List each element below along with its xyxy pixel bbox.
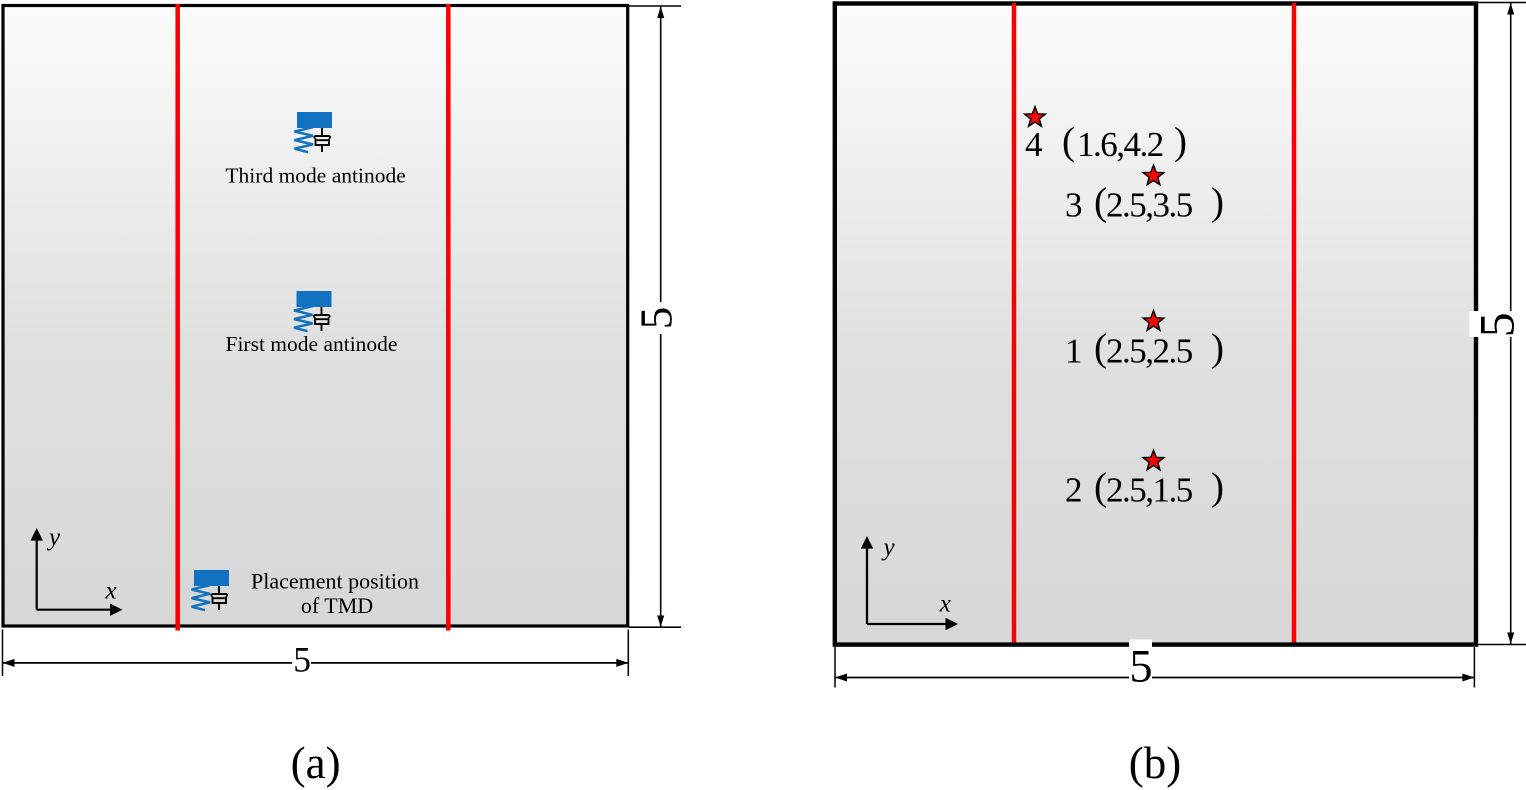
svg-text:Placement position: Placement position [251, 568, 419, 593]
svg-text:y: y [881, 534, 896, 561]
svg-text:5: 5 [293, 640, 311, 680]
svg-text:Third mode antinode: Third mode antinode [225, 163, 405, 187]
svg-text:First mode antinode: First mode antinode [226, 332, 398, 356]
svg-text:5: 5 [1129, 641, 1152, 692]
svg-text:y: y [46, 524, 61, 551]
svg-text:of TMD: of TMD [301, 593, 373, 618]
svg-text:x: x [939, 591, 951, 618]
svg-text:x: x [105, 578, 117, 605]
svg-text:5: 5 [632, 307, 682, 330]
svg-text:(b): (b) [1129, 738, 1181, 788]
svg-text:(a): (a) [291, 738, 341, 788]
svg-text:5: 5 [1469, 312, 1525, 337]
